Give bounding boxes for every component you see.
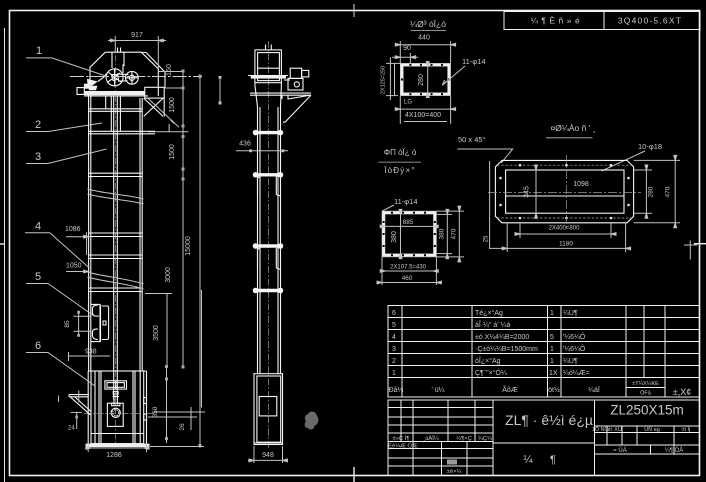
svg-text:436: 436 [239,141,251,148]
svg-text:'¼6¼Ô: '¼6¼Ô [563,344,586,353]
svg-text:1086: 1086 [65,226,81,233]
svg-text:' ü¼: ' ü¼ [431,387,444,394]
svg-text:ÏòÐý×°: ÏòÐý×° [384,166,416,175]
svg-text:ÛÑ ag: ÛÑ ag [644,426,660,433]
svg-text:ZL250X15m: ZL250X15m [610,403,684,418]
svg-text:±ì XÛ: ±ì XÛ [608,426,622,433]
svg-text:1: 1 [392,370,396,377]
svg-text:·Ç±ó¼¼B=1500mm: ·Ç±ó¼¼B=1500mm [475,346,538,353]
svg-text:1098: 1098 [573,181,589,188]
svg-text:280: 280 [418,74,425,86]
svg-text:3: 3 [392,346,396,353]
svg-text:2: 2 [35,119,41,131]
svg-text:±ó X¼4¼B=2000: ±ó X¼4¼B=2000 [475,334,529,341]
svg-text:5: 5 [35,271,41,283]
svg-text:¼ó¼Æ=: ¼ó¼Æ= [563,370,590,377]
svg-text:Ç¶¨"×°Ó¼: Ç¶¨"×°Ó¼ [475,368,507,377]
svg-text:¼¶Èñ»é: ¼¶Èñ»é [531,16,584,26]
svg-text:150: 150 [166,64,173,76]
svg-text:24: 24 [68,426,75,432]
svg-text:3500: 3500 [153,325,160,341]
svg-text:5: 5 [550,334,554,341]
svg-text:±ê×¼: ±ê×¼ [447,469,462,475]
svg-text:1500: 1500 [169,97,176,113]
svg-text:±T¼X¼KE: ±T¼X¼KE [632,381,659,387]
svg-text:25: 25 [484,235,490,242]
svg-text:2X400=800: 2X400=800 [549,226,581,232]
svg-text:885: 885 [403,219,414,226]
svg-text:2X125=250: 2X125=250 [381,66,387,94]
svg-text:öt½: öt½ [548,386,560,394]
svg-text:26: 26 [179,423,186,431]
svg-text:2X107.5=430: 2X107.5=430 [390,265,427,271]
svg-text:1Ö N¼: 1Ö N¼ [592,426,610,433]
svg-text:¼U¶: ¼U¶ [563,358,578,365]
svg-text:85: 85 [64,320,71,328]
svg-text:Éè¼Æ ÖÆ: Éè¼Æ ÖÆ [388,442,418,449]
svg-text:15000: 15000 [185,236,192,256]
svg-text:Té¿×°Ag: Té¿×°Ag [475,309,503,317]
svg-text:440: 440 [418,35,430,42]
svg-text:I: I [168,123,171,135]
svg-text:ΦΠ óÏ¿ ó: ΦΠ óÏ¿ ó [384,148,417,157]
svg-text:380: 380 [439,228,446,239]
svg-text:90: 90 [403,45,411,52]
svg-text:3Q400-5.6XT: 3Q400-5.6XT [618,16,682,26]
svg-text:1050: 1050 [66,263,82,270]
svg-text:ZL¶ · ê½ì é¿µ: ZL¶ · ê½ì é¿µ [505,412,593,428]
svg-text:±«Ç Ï¶: ±«Ç Ï¶ [393,435,410,442]
svg-text:11-φ14: 11-φ14 [394,197,418,206]
svg-text:¶: ¶ [550,454,556,466]
svg-text:470: 470 [665,186,672,197]
svg-text:¤Ø¼Ào ñ ' ¸: ¤Ø¼Ào ñ ' ¸ [550,123,595,133]
svg-text:3: 3 [35,151,41,163]
svg-text:1: 1 [550,310,554,317]
svg-text:1500: 1500 [169,144,176,160]
svg-text:50 x 45°: 50 x 45° [458,135,486,144]
svg-text:3000: 3000 [165,267,172,283]
svg-text:4: 4 [392,334,396,341]
svg-text:¼Ç¼: ¼Ç¼ [478,436,492,442]
svg-text:¼Ø³ óÏ¿ó: ¼Ø³ óÏ¿ó [410,19,446,29]
svg-text:ÖFä: ÖFä [640,390,652,397]
svg-text:917: 917 [131,32,143,39]
svg-text:¼: ¼ [523,454,533,466]
svg-text:1: 1 [36,45,42,57]
svg-text:ÃõÆ: ÃõÆ [502,385,518,394]
svg-text:¼¶ ÖÅ: ¼¶ ÖÅ [665,447,684,454]
svg-text:áÎ·¼" á' ¼á: áÎ·¼" á' ¼á [475,320,510,329]
svg-text:380: 380 [391,231,398,243]
svg-text:1: 1 [550,358,554,365]
svg-text:¼U¶: ¼U¶ [563,310,578,317]
svg-text:4: 4 [35,221,41,233]
svg-text:280: 280 [648,186,655,197]
svg-text:óÎ¿×°Ag: óÎ¿×°Ag [475,356,501,365]
svg-text:2: 2 [392,358,396,365]
svg-text:LG: LG [404,100,412,106]
svg-text:350: 350 [152,406,159,417]
svg-text:¼¶×Ç: ¼¶×Ç [456,436,472,442]
svg-text:1180: 1180 [559,241,573,248]
svg-text:±ì Ïj: ±ì Ïj [682,426,691,433]
svg-text:¸üÄÎ¼: ¸üÄÎ¼ [423,435,439,442]
svg-text:470: 470 [451,228,458,239]
svg-text:1286: 1286 [106,452,122,459]
svg-text:6: 6 [35,340,41,352]
svg-text:¼áÏ: ¼áÏ [588,386,600,394]
svg-text:948: 948 [262,452,274,459]
svg-text:6: 6 [392,310,396,317]
svg-text:10-φ18: 10-φ18 [638,142,662,151]
svg-text:±,X¢: ±,X¢ [673,387,691,397]
svg-text:11-φ14: 11-φ14 [462,57,486,66]
svg-text:= ÛÁ: = ÛÁ [613,447,627,454]
svg-text:345: 345 [524,186,531,198]
svg-text:938: 938 [85,349,97,356]
svg-text:'¼6¼Ô: '¼6¼Ô [563,332,586,341]
svg-text:Ðå¼: Ðå¼ [389,386,404,394]
svg-text:5: 5 [392,322,396,329]
svg-text:460: 460 [402,275,413,282]
svg-text:1X: 1X [549,370,558,377]
svg-text:4X100=400: 4X100=400 [405,112,441,119]
svg-text:1: 1 [550,346,554,353]
